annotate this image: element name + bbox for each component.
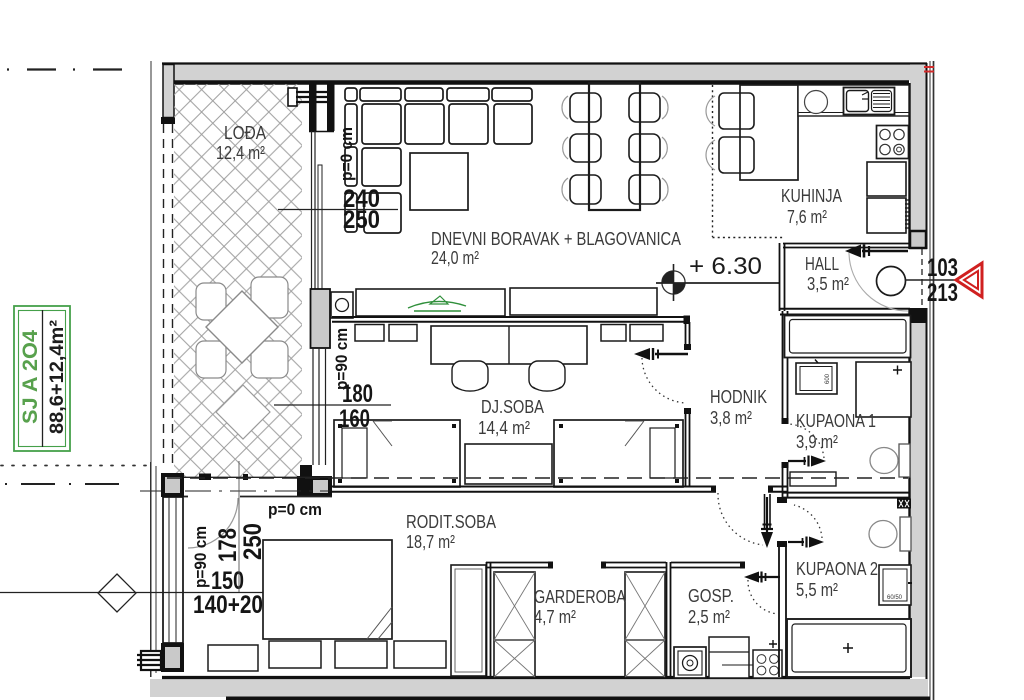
svg-text:p=0 cm: p=0 cm [268, 501, 322, 519]
svg-text:GARDEROBA: GARDEROBA [534, 586, 627, 607]
svg-text:GOSP.: GOSP. [688, 585, 734, 606]
svg-text:HODNIK: HODNIK [710, 386, 768, 407]
svg-text:160: 160 [339, 405, 370, 433]
svg-text:140+20: 140+20 [193, 591, 263, 619]
svg-text:3,9 m²: 3,9 m² [796, 431, 838, 452]
svg-text:18,7 m²: 18,7 m² [406, 531, 455, 552]
svg-text:7,6 m²: 7,6 m² [787, 206, 827, 227]
svg-text:p=90 cm: p=90 cm [192, 526, 210, 588]
svg-text:88,6+12,4m²: 88,6+12,4m² [47, 320, 68, 434]
svg-text:600: 600 [825, 373, 831, 384]
svg-text:DNEVNI BORAVAK + BLAGOVANICA: DNEVNI BORAVAK + BLAGOVANICA [431, 228, 682, 249]
svg-text:60/50: 60/50 [887, 595, 903, 601]
svg-text:DJ.SOBA: DJ.SOBA [481, 396, 545, 417]
svg-text:KUPAONA 2: KUPAONA 2 [796, 558, 878, 579]
svg-text:2,5 m²: 2,5 m² [688, 606, 730, 627]
svg-text:LOĐA: LOĐA [224, 122, 267, 143]
svg-text:SJ A 2O4: SJ A 2O4 [19, 330, 42, 424]
svg-text:14,4 m²: 14,4 m² [478, 417, 530, 438]
svg-text:24,0 m²: 24,0 m² [431, 247, 479, 268]
svg-text:3,5 m²: 3,5 m² [807, 273, 849, 294]
svg-text:5,5 m²: 5,5 m² [796, 579, 838, 600]
svg-text:3,8 m²: 3,8 m² [710, 407, 752, 428]
svg-text:p=0 cm: p=0 cm [338, 127, 356, 181]
svg-text:4,7 m²: 4,7 m² [534, 606, 576, 627]
svg-text:213: 213 [927, 279, 958, 307]
svg-text:+ 6.30: + 6.30 [689, 253, 762, 280]
svg-text:250: 250 [343, 206, 380, 234]
svg-text:12,4 m²: 12,4 m² [216, 142, 265, 163]
svg-text:KUHINJA: KUHINJA [781, 185, 843, 206]
svg-text:KUPAONA 1: KUPAONA 1 [796, 410, 876, 431]
svg-text:103: 103 [927, 254, 958, 282]
svg-text:178: 178 [214, 528, 242, 562]
svg-text:HALL: HALL [805, 253, 839, 274]
svg-text:p=90 cm: p=90 cm [333, 328, 351, 390]
svg-text:RODIT.SOBA: RODIT.SOBA [406, 511, 497, 532]
